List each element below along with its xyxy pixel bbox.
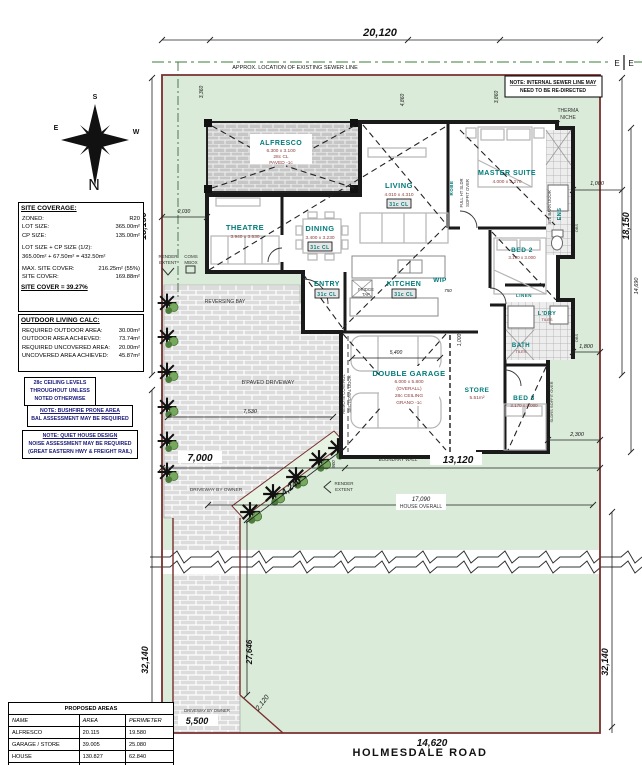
room-living-ceiling: 31c CL bbox=[389, 202, 408, 208]
dim-garage-right: 1,000 bbox=[457, 334, 463, 347]
ceiling-note: 28c CEILING LEVELSTHROUGHOUT UNLESSNOTED… bbox=[24, 377, 96, 406]
driveway-owner-label-1: DRIVEWAY BY OWNER bbox=[190, 487, 243, 493]
room-garage: DOUBLE GARAGE bbox=[372, 369, 445, 378]
internal-sewer-note-2: NEED TO BE RE-DIRECTED bbox=[520, 88, 586, 94]
dim-wip: 750 bbox=[444, 288, 452, 293]
sldrs-soffit-label: SLDRS SOFFIT OVER bbox=[549, 381, 554, 422]
sc-formula: 365.00m² + 67.50m² = 432.50m² bbox=[19, 253, 143, 261]
room-theatre: THEATRE bbox=[226, 223, 264, 232]
dim-900: 900 bbox=[331, 460, 336, 468]
areas-title-row: PROPOSED AREAS bbox=[9, 703, 174, 715]
driveway-owner-label-2: DRIVEWAY BY OWNER bbox=[184, 708, 230, 713]
dim-17090: 17,090 bbox=[412, 497, 431, 503]
room-wip: WIP bbox=[433, 277, 447, 284]
ol-row-1: REQUIRED OUTDOOR AREA:30.00m² bbox=[19, 327, 143, 335]
site-plan-canvas: S E W N 20,120 3,360 4,860 3,860 APPROX.… bbox=[0, 0, 642, 765]
sc-row-max: MAX. SITE COVER:216.25m² (55%) bbox=[19, 265, 143, 273]
site-coverage-panel: SITE COVERAGE: ZONED:R20 LOT SIZE:365.00… bbox=[18, 202, 144, 312]
ol-row-4: UNCOVERED AREA ACHIEVED:45.87m² bbox=[19, 352, 143, 360]
room-bed2-size: 3.170 x 3.000 bbox=[508, 255, 536, 260]
room-alfresco-ceiling: 28c CL bbox=[273, 154, 289, 160]
render-extent-right-2: EXTENT bbox=[335, 487, 353, 492]
room-dining-size: 3.400 x 3.230 bbox=[305, 235, 334, 241]
remote-door-1: REMOTE CONTROL bbox=[341, 374, 346, 414]
room-store: STORE bbox=[465, 387, 490, 394]
render-extent-right-1: RENDER bbox=[334, 481, 354, 486]
bushfire-note: NOTE: BUSHFIRE PRONE AREABAL ASSESSMENT … bbox=[27, 405, 133, 427]
room-garage-ceiling: 28c CEILING bbox=[395, 393, 424, 399]
dim-7000: 7,000 bbox=[187, 453, 212, 464]
render-extent-left-1: RENDER bbox=[158, 254, 178, 259]
dim-left-lower: 32,140 bbox=[140, 646, 150, 674]
room-alfresco-size: 6.300 x 3.100 bbox=[266, 148, 295, 154]
room-theatre-size: 3.940 x 3.530 bbox=[230, 234, 259, 240]
obs-window-1: OBS bbox=[574, 223, 579, 232]
room-bed3-size: 3.170 x 3.000 bbox=[510, 403, 538, 408]
compass-east: E bbox=[54, 125, 59, 132]
dim-7530: 7,530 bbox=[243, 409, 258, 415]
render-extent-left-2: EXTENT bbox=[159, 260, 177, 265]
compass bbox=[61, 104, 129, 186]
sewer-marker-right: E bbox=[628, 59, 633, 68]
dim-seg3: 3,860 bbox=[494, 91, 500, 104]
dim-right-2300: 2,300 bbox=[569, 432, 585, 438]
sewer-marker-left: E bbox=[614, 59, 619, 68]
room-dining-ceiling: 31c CL bbox=[310, 245, 329, 251]
room-bed2: BED 2 bbox=[511, 247, 533, 254]
sc-row-cover: SITE COVER:169.88m² bbox=[19, 273, 143, 281]
dim-left-2030: 2,030 bbox=[177, 209, 191, 215]
room-alfresco: ALFRESCO bbox=[260, 140, 303, 147]
sc-row-lot: LOT SIZE:365.00m² bbox=[19, 223, 143, 231]
full-ht-sldr-2: SOFFIT OVER bbox=[465, 179, 470, 207]
outdoor-living-panel: OUTDOOR LIVING CALC: REQUIRED OUTDOOR AR… bbox=[18, 314, 144, 372]
house-overall-label: HOUSE OVERALL bbox=[400, 504, 442, 510]
room-ldry-floor: TILES bbox=[541, 317, 552, 322]
dim-seg1: 3,360 bbox=[199, 86, 205, 99]
dim-seg2: 4,860 bbox=[400, 94, 406, 107]
boundary-wall-label: BOUNDARY WALL bbox=[379, 457, 418, 462]
dim-leg: 27,646 bbox=[245, 639, 254, 665]
room-master: MASTER SUITE bbox=[478, 170, 536, 177]
room-bed3: BED 3 bbox=[513, 395, 535, 402]
proposed-areas-table: PROPOSED AREAS NAME AREA PERIMETER ALFRE… bbox=[8, 702, 174, 765]
room-ens: ENS bbox=[557, 208, 563, 221]
bpaved-driveway-label: B'PAVED DRIVEWAY bbox=[242, 380, 295, 386]
site-plan-drawing: S E W N 20,120 3,360 4,860 3,860 APPROX.… bbox=[0, 0, 642, 765]
sewer-note: APPROX. LOCATION OF EXISTING SEWER LINE bbox=[232, 65, 358, 71]
remote-door-2: SECTIONAL DOOR bbox=[347, 375, 352, 412]
therma-niche-2: NICHE bbox=[560, 115, 576, 121]
dim-right-1000: 1,000 bbox=[590, 181, 605, 187]
room-living-size: 4.010 x 4.310 bbox=[384, 192, 413, 198]
dim-strip-width: 5,500 bbox=[186, 716, 209, 726]
room-kitchen: KITCHEN bbox=[387, 281, 422, 288]
ol-row-2: OUTDOOR AREA ACHIEVED:73.74m² bbox=[19, 335, 143, 343]
sc-formula-label: LOT SIZE + CP SIZE (1/2): bbox=[19, 244, 143, 252]
barn-door-label: 870 BARN DOOR bbox=[547, 190, 552, 224]
areas-header-row: NAME AREA PERIMETER bbox=[9, 715, 174, 727]
outdoor-living-title: OUTDOOR LIVING CALC: bbox=[21, 317, 143, 324]
sc-row-cp: CP SIZE:135.00m² bbox=[19, 232, 143, 240]
sc-row-zoned: ZONED:R20 bbox=[19, 215, 143, 223]
sc-result: SITE COVER = 39.27% bbox=[19, 282, 143, 292]
obs-window-2: OBS bbox=[574, 333, 579, 342]
site-coverage-title: SITE COVERAGE: bbox=[21, 205, 143, 212]
room-entry-ceiling: 31c CL bbox=[317, 292, 336, 298]
room-linen: LINEN bbox=[516, 293, 532, 298]
road-name: HOLMESDALE ROAD bbox=[353, 747, 488, 759]
compass-north: N bbox=[88, 177, 100, 194]
room-robe: ROBE bbox=[449, 180, 454, 195]
room-store-area: 5.51m² bbox=[470, 395, 485, 401]
room-garage-note: (OVERALL) bbox=[396, 386, 422, 392]
room-bath-floor: TILES bbox=[515, 349, 526, 354]
coms-mbox-1: COMS bbox=[184, 254, 198, 259]
room-garage-size: 6.000 x 5.800 bbox=[394, 379, 423, 385]
room-master-size: 4.000 x 3.270 bbox=[492, 179, 521, 185]
internal-sewer-note-1: NOTE: INTERNAL SEWER LINE MAY bbox=[510, 80, 597, 86]
break-line bbox=[150, 550, 642, 574]
areas-row-garage: GARAGE / STORE39.00525.080 bbox=[9, 739, 174, 751]
dim-13120: 13,120 bbox=[443, 455, 474, 466]
dim-right-upper: 18,150 bbox=[621, 212, 631, 240]
room-kitchen-ceiling: 31c CL bbox=[394, 292, 413, 298]
room-alfresco-floor: PAVED -1c bbox=[269, 160, 293, 166]
compass-south: S bbox=[93, 94, 98, 101]
room-entry: ENTRY bbox=[314, 281, 340, 288]
quiet-house-note: NOTE: QUIET HOUSE DESIGNNOISE ASSESSMENT… bbox=[22, 430, 138, 459]
dim-lot-width: 20,120 bbox=[362, 27, 398, 39]
dim-garage-width: 5,400 bbox=[390, 350, 403, 356]
room-garage-floor: GRANO -1c bbox=[396, 400, 422, 406]
room-dining: DINING bbox=[305, 224, 334, 233]
therma-niche-1: THERMA bbox=[557, 108, 579, 114]
compass-west: W bbox=[133, 129, 140, 136]
ol-row-3: REQUIRED UNCOVERED AREA:20.00m² bbox=[19, 344, 143, 352]
dim-right-inner: 14,690 bbox=[634, 277, 640, 295]
coms-mbox-2: MBOX bbox=[184, 260, 197, 265]
full-ht-sldr-1: FULL HT SLDR bbox=[459, 178, 464, 207]
fridge-tap-2: TAP bbox=[362, 292, 370, 297]
room-living: LIVING bbox=[385, 181, 413, 190]
dim-right-lower: 32,140 bbox=[600, 648, 610, 676]
reversing-bay-label: REVERSING BAY bbox=[205, 299, 246, 305]
areas-row-alfresco: ALFRESCO20.11519.580 bbox=[9, 727, 174, 739]
areas-row-house: HOUSE130.82762.840 bbox=[9, 751, 174, 763]
dim-right-1800: 1,800 bbox=[579, 344, 594, 350]
